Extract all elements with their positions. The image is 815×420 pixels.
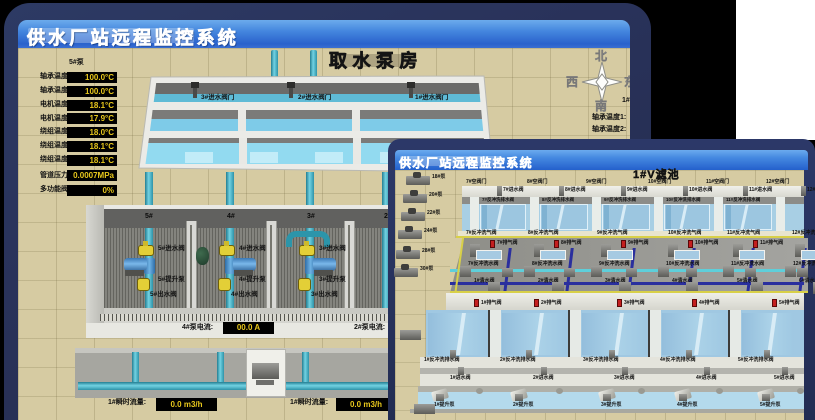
svg-text:北: 北 [595,48,607,63]
svg-text:南: 南 [595,98,607,112]
svg-text:西: 西 [566,75,578,89]
svg-text:东: 东 [624,74,630,89]
